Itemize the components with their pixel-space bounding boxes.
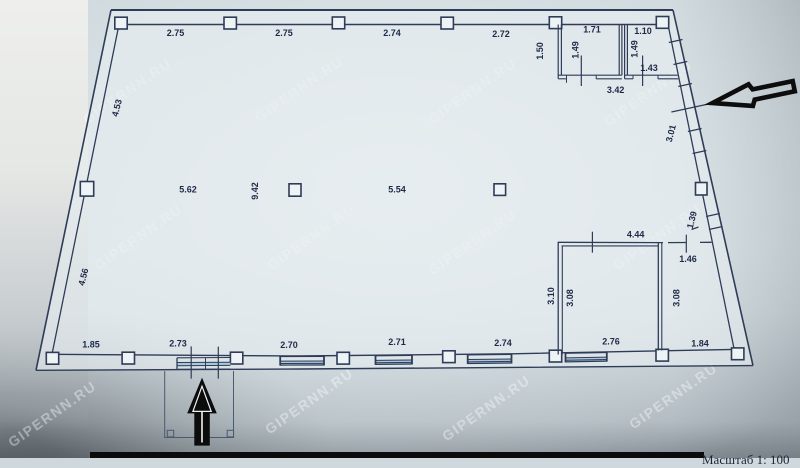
svg-text:GIPERNN.RU: GIPERNN.RU [439, 372, 533, 445]
svg-text:3.42: 3.42 [607, 85, 625, 95]
svg-text:2.74: 2.74 [494, 338, 512, 348]
svg-text:1.71: 1.71 [583, 24, 601, 34]
svg-text:2.76: 2.76 [602, 337, 620, 347]
svg-text:3.08: 3.08 [565, 289, 575, 307]
svg-text:4.44: 4.44 [627, 230, 645, 240]
svg-text:GIPERNN.RU: GIPERNN.RU [5, 378, 99, 451]
svg-text:2.70: 2.70 [280, 340, 298, 350]
svg-text:1.46: 1.46 [679, 254, 697, 264]
svg-text:5.54: 5.54 [388, 184, 406, 194]
svg-text:2.74: 2.74 [383, 28, 401, 38]
svg-text:5.62: 5.62 [179, 184, 197, 194]
svg-text:9.42: 9.42 [250, 182, 260, 200]
svg-text:2.73: 2.73 [169, 339, 187, 349]
svg-text:GIPERNN.RU: GIPERNN.RU [262, 365, 356, 438]
svg-text:1.84: 1.84 [691, 339, 709, 349]
svg-text:2.75: 2.75 [275, 28, 293, 38]
svg-text:3.10: 3.10 [546, 287, 556, 305]
svg-text:1.43: 1.43 [640, 63, 658, 73]
svg-text:1.10: 1.10 [634, 26, 652, 36]
svg-text:2.72: 2.72 [492, 29, 510, 39]
svg-text:3.08: 3.08 [671, 289, 681, 307]
svg-text:1.49: 1.49 [570, 41, 580, 59]
svg-text:2.75: 2.75 [167, 28, 185, 38]
svg-text:1.85: 1.85 [82, 340, 100, 350]
svg-text:GIPERNN.RU: GIPERNN.RU [626, 360, 720, 433]
svg-text:2.71: 2.71 [388, 337, 406, 347]
svg-text:1.49: 1.49 [629, 40, 639, 58]
svg-text:1.50: 1.50 [535, 42, 545, 60]
